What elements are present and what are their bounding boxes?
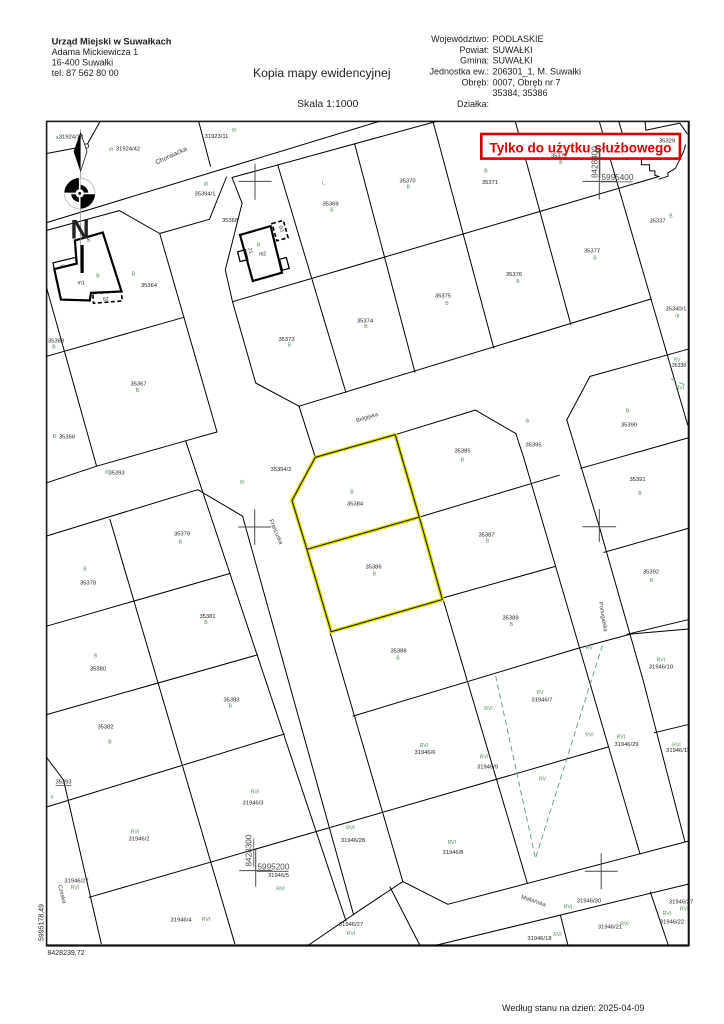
svg-text:31946/5: 31946/5 [268,873,289,879]
svg-text:PODLASKIE: PODLASKIE [493,34,544,44]
svg-text:31946/30: 31946/30 [577,899,601,905]
svg-text:B: B [593,256,597,262]
svg-text:35366: 35366 [59,435,75,441]
svg-text:RVI: RVI [131,830,139,836]
svg-text:B: B [364,324,368,330]
svg-text:35377: 35377 [584,249,600,255]
svg-text:0007, Obręb nr 7: 0007, Obręb nr 7 [493,78,561,88]
svg-text:B: B [396,656,400,662]
svg-text:RVI: RVI [251,790,259,796]
svg-text:31946/29: 31946/29 [614,742,638,748]
svg-text:31946/2: 31946/2 [129,837,150,843]
svg-text:B: B [373,572,377,578]
svg-text:B: B [229,704,233,710]
svg-text:SUWAŁKI: SUWAŁKI [493,56,533,66]
svg-text:35394/1: 35394/1 [195,192,216,198]
svg-text:B: B [559,160,563,166]
svg-text:8428300: 8428300 [245,834,254,866]
svg-text:dr: dr [675,314,680,320]
svg-text:m1: m1 [77,281,84,287]
svg-text:B: B [330,208,334,214]
svg-text:35376: 35376 [506,272,522,278]
svg-text:B: B [626,409,630,415]
svg-text:5995400: 5995400 [602,173,634,182]
svg-text:35385: 35385 [454,449,470,455]
svg-text:RVI: RVI [585,733,593,739]
svg-text:Jednostka ew.:: Jednostka ew.: [429,67,489,77]
svg-text:8428239,72: 8428239,72 [48,950,85,957]
svg-text:RV: RV [539,777,547,783]
svg-text:62: 62 [103,296,109,302]
svg-text:31946/10: 31946/10 [649,665,673,671]
svg-text:35371: 35371 [482,180,498,186]
svg-text:RVI: RVI [564,905,572,911]
svg-text:Adama Mickiewicza 1: Adama Mickiewicza 1 [52,47,139,57]
svg-text:Chorwacka: Chorwacka [154,146,188,167]
svg-text:35380: 35380 [90,667,106,673]
svg-text:35363: 35363 [48,339,64,345]
svg-text:35391: 35391 [629,477,645,483]
svg-text:a: a [50,795,53,801]
svg-text:31946/18: 31946/18 [527,936,551,942]
svg-text:RV: RV [537,690,545,696]
svg-text:B: B [288,343,292,349]
svg-text:21: 21 [246,247,253,254]
svg-text:35384, 35386: 35384, 35386 [493,88,548,98]
svg-text:RVI: RVI [617,735,625,741]
svg-text:B: B [407,185,411,191]
svg-text:35368: 35368 [222,218,238,224]
svg-text:31946/27: 31946/27 [669,900,693,906]
svg-text:31946/7: 31946/7 [532,698,553,704]
svg-text:35394/2: 35394/2 [271,467,292,473]
svg-text:SUWAŁKI: SUWAŁKI [493,45,533,55]
svg-text:35375: 35375 [435,294,451,300]
svg-text:35388: 35388 [390,649,406,655]
svg-text:5995200: 5995200 [258,863,290,872]
svg-text:dr: dr [109,147,114,153]
svg-text:RVI: RVI [276,887,284,893]
svg-text:31946/27: 31946/27 [339,922,363,928]
svg-text:B: B [484,169,488,175]
svg-text:31946/9: 31946/9 [477,765,498,771]
svg-text:RVI: RVI [620,922,628,928]
svg-text:Tylko do użytku służbowego: Tylko do użytku służbowego [489,141,671,156]
svg-text:B: B [132,272,136,278]
svg-text:35389: 35389 [502,616,518,622]
svg-text:B: B [486,539,490,545]
svg-text:31946/21: 31946/21 [598,925,622,931]
svg-text:B: B [257,243,261,249]
svg-text:Powiat:: Powiat: [459,45,489,55]
svg-text:Maltańska: Maltańska [520,895,547,909]
svg-text:RV: RV [586,646,594,652]
svg-text:Województwo:: Województwo: [431,34,489,44]
svg-text:B: B [179,540,183,546]
svg-text:Według stanu na dzień: 2025-04: Według stanu na dzień: 2025-04-09 [502,1003,644,1013]
svg-text:dr: dr [240,480,245,486]
svg-text:35386: 35386 [365,565,381,571]
svg-text:35392: 35392 [643,570,659,576]
svg-text:35337: 35337 [649,219,665,225]
svg-text:31946/28: 31946/28 [341,838,365,844]
svg-text:Działka:: Działka: [457,99,489,109]
svg-text:RVI: RVI [553,932,561,938]
svg-text:35384: 35384 [347,502,364,508]
svg-text:35367: 35367 [130,382,146,388]
svg-text:35378: 35378 [80,581,96,587]
svg-text:Portugalska: Portugalska [597,602,608,633]
svg-text:RVI: RVI [657,658,665,664]
svg-text:RVI: RVI [680,907,688,913]
svg-text:35340/1: 35340/1 [666,307,687,313]
svg-text:B: B [638,491,642,497]
svg-text:L: L [322,181,325,187]
svg-text:35379: 35379 [174,532,190,538]
svg-text:Belgijska: Belgijska [355,412,379,425]
svg-text:31946/3: 31946/3 [243,801,264,807]
svg-text:31924/18: 31924/18 [59,135,83,141]
svg-text:Gmina:: Gmina: [460,56,489,66]
svg-text:B: B [108,740,112,746]
svg-text:206301_1, M. Suwałki: 206301_1, M. Suwałki [493,67,582,77]
svg-text:5995178,49: 5995178,49 [39,904,46,941]
svg-text:35364: 35364 [141,283,158,289]
svg-text:RVI: RVI [347,931,355,937]
svg-text:Czeska: Czeska [56,884,67,905]
svg-text:31946/27: 31946/27 [64,879,88,885]
svg-text:31946/6: 31946/6 [415,750,436,756]
svg-text:dr: dr [105,470,110,476]
svg-text:35395: 35395 [525,443,541,449]
svg-text:dr: dr [525,419,530,425]
svg-text:16-400 Suwałki: 16-400 Suwałki [52,58,114,68]
svg-text:B: B [53,434,57,440]
svg-text:RVI: RVI [663,911,671,917]
svg-text:31946/11: 31946/11 [666,748,690,754]
svg-text:B: B [461,458,465,464]
svg-text:B: B [52,345,56,351]
svg-text:31946/22: 31946/22 [660,920,684,926]
svg-text:35393: 35393 [108,471,124,477]
svg-text:B: B [650,578,654,584]
svg-text:95: 95 [60,263,67,269]
svg-text:m2: m2 [259,252,266,258]
svg-text:tel. 87 562 80 00: tel. 87 562 80 00 [52,68,119,78]
svg-text:31946/8: 31946/8 [443,850,464,856]
svg-text:dr: dr [204,182,209,188]
svg-text:35338: 35338 [672,363,686,369]
svg-text:35373: 35373 [278,337,294,343]
svg-text:Skala 1:1000: Skala 1:1000 [297,98,358,110]
svg-text:a: a [56,135,59,141]
svg-text:B: B [445,301,449,307]
svg-text:35382: 35382 [97,725,113,731]
svg-text:8428400: 8428400 [591,146,600,178]
svg-text:Obręb:: Obręb: [461,78,489,88]
svg-text:0/1: 0/1 [277,225,285,234]
svg-text:B: B [94,654,98,660]
svg-text:RVI: RVI [484,706,492,712]
svg-text:35393: 35393 [55,780,71,786]
svg-text:dr: dr [232,128,237,134]
svg-text:B: B [83,567,87,573]
svg-text:B: B [669,214,673,220]
svg-text:RVI: RVI [420,743,428,749]
svg-text:RVI: RVI [448,840,456,846]
svg-text:RVI: RVI [202,917,210,923]
svg-text:31923/11: 31923/11 [205,134,229,140]
svg-text:B: B [204,620,208,626]
svg-text:Urząd Miejski w Suwałkach: Urząd Miejski w Suwałkach [52,37,172,47]
svg-text:RVI: RVI [71,885,79,891]
svg-text:S: S [87,238,91,244]
svg-text:31924/42: 31924/42 [116,147,140,153]
svg-text:B: B [96,274,100,280]
svg-text:B: B [510,622,514,628]
svg-text:B: B [516,279,520,285]
svg-text:35390: 35390 [621,423,637,429]
svg-text:B: B [136,388,140,394]
svg-text:31946/4: 31946/4 [171,918,193,924]
svg-text:RVI: RVI [480,755,488,761]
svg-text:Francuska: Francuska [267,519,283,547]
svg-text:35372: 35372 [551,154,567,160]
svg-text:RVI: RVI [346,826,354,832]
svg-text:35329: 35329 [659,139,675,145]
svg-text:B: B [350,490,354,496]
svg-text:RVI: RVI [676,386,684,392]
svg-text:Kopia mapy ewidencyjnej: Kopia mapy ewidencyjnej [253,66,391,80]
